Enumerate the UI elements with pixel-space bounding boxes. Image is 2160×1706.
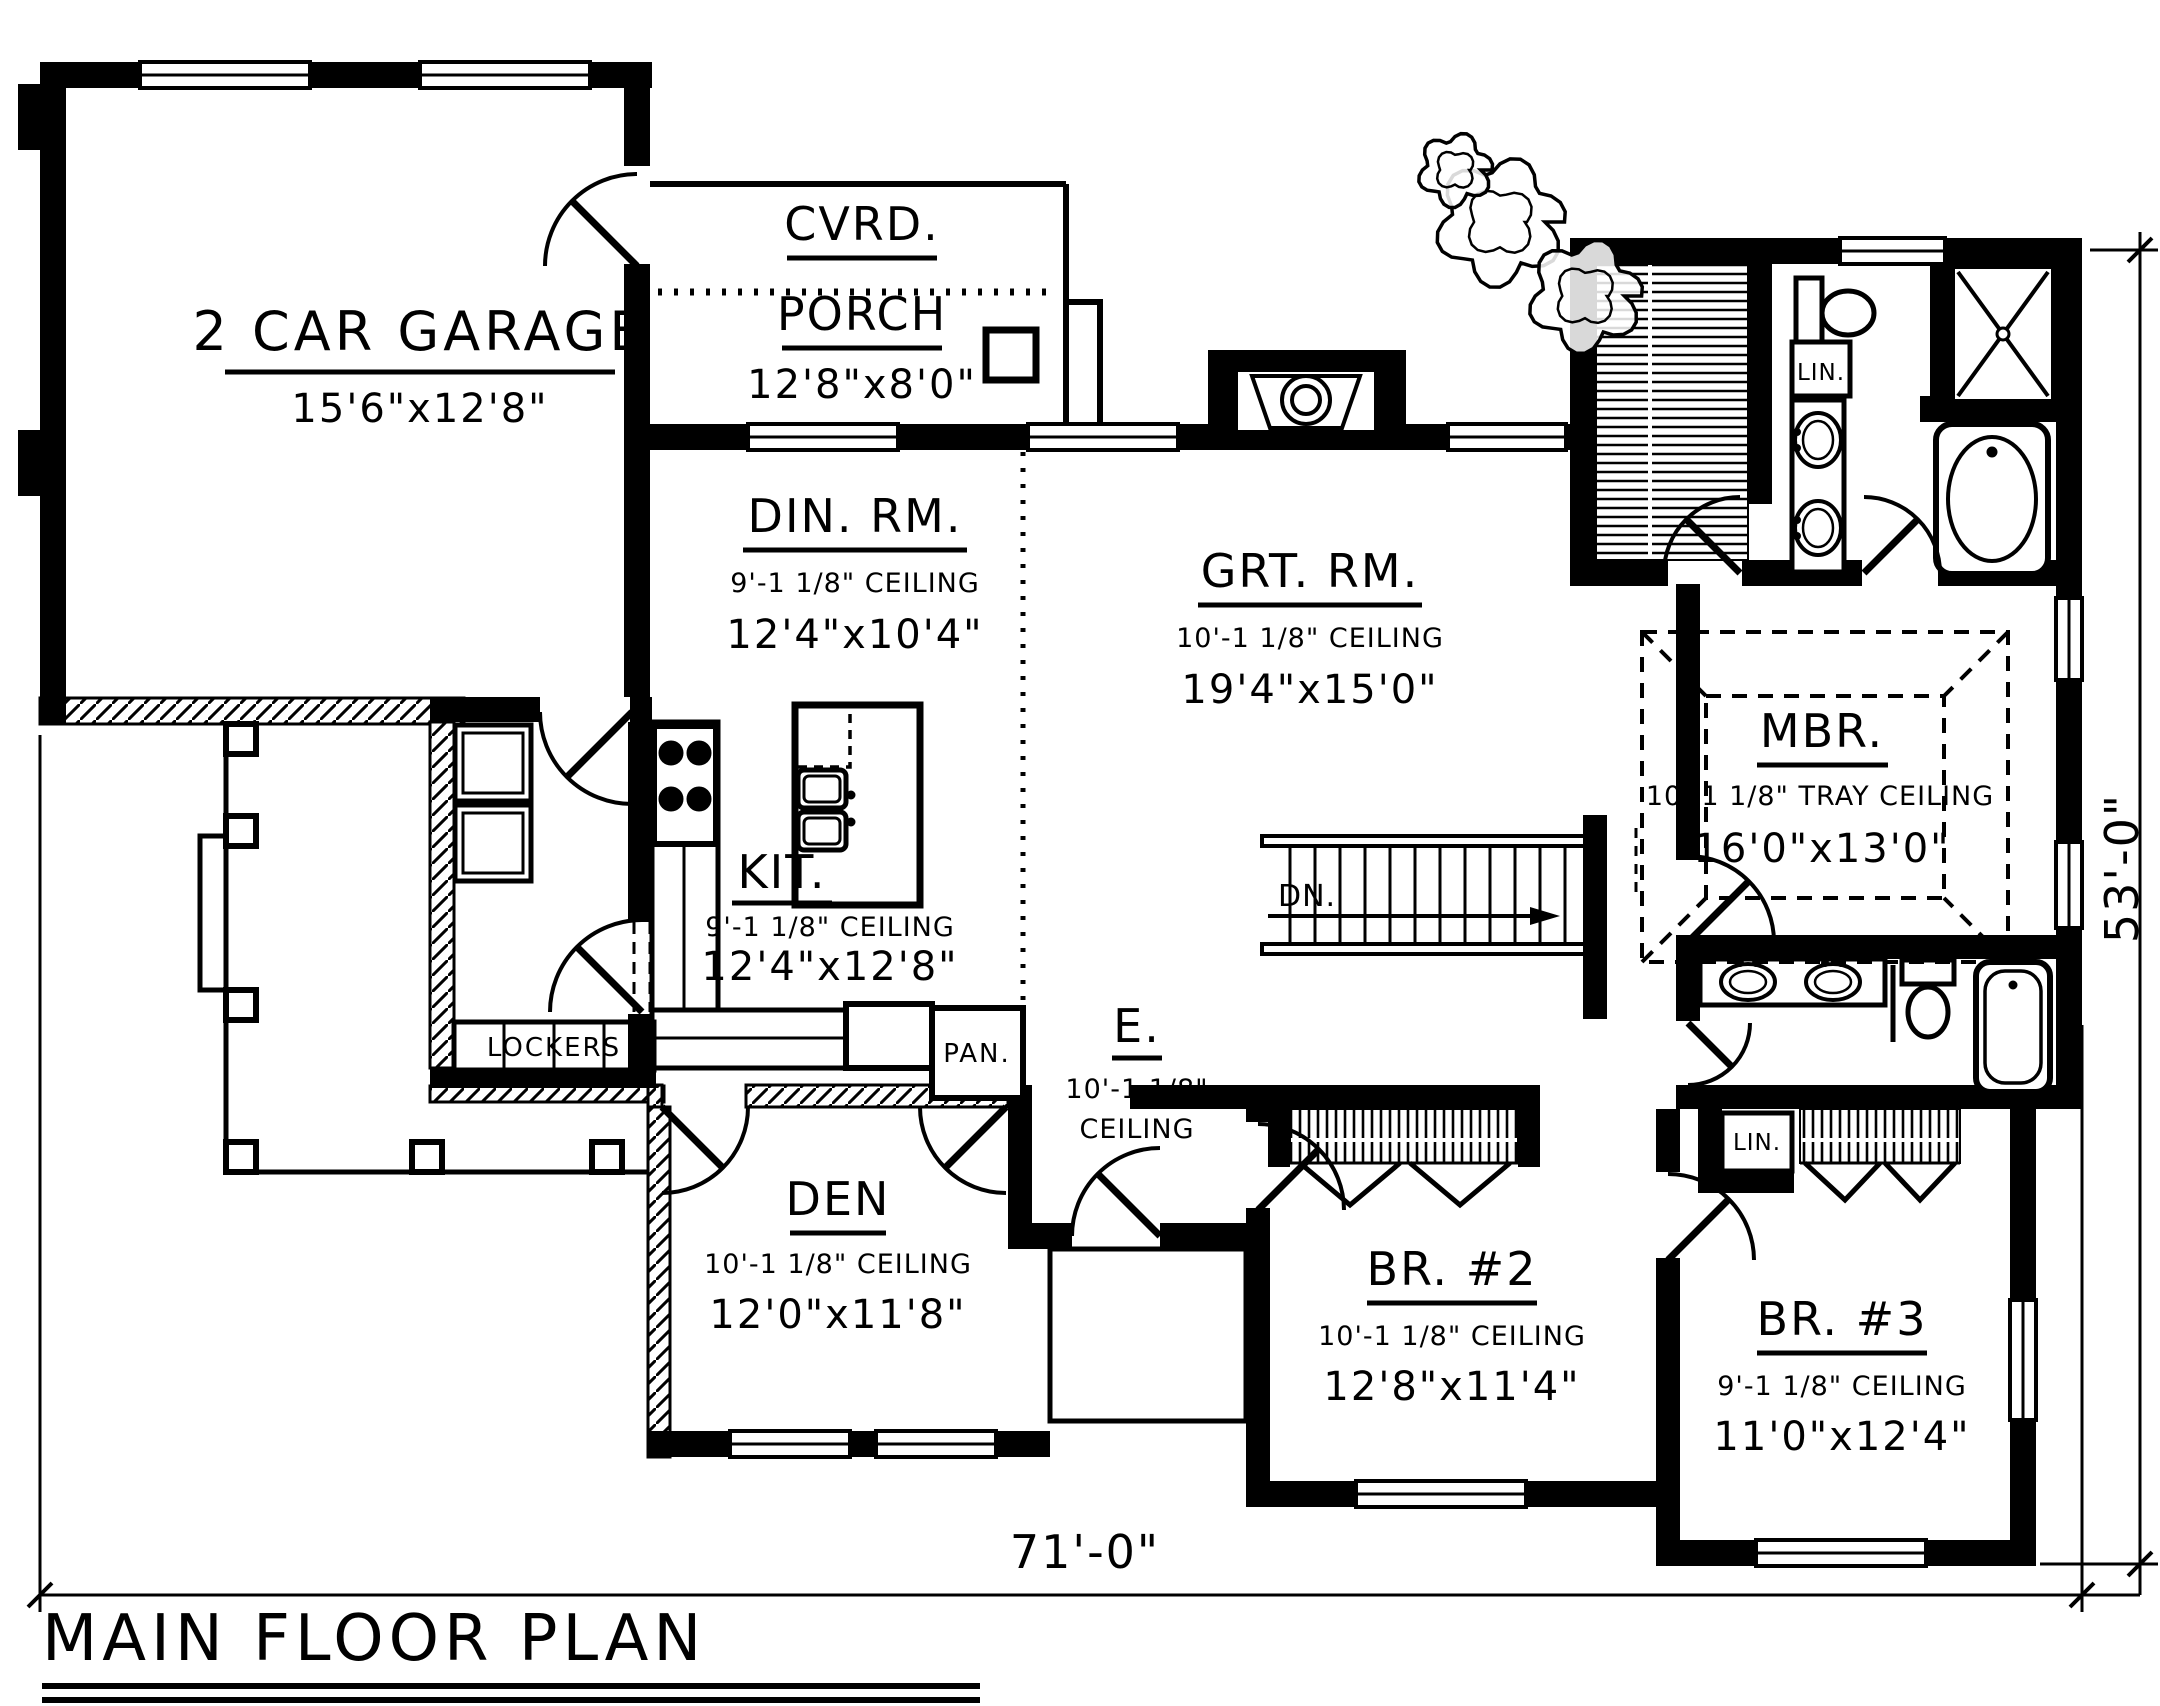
porch-label-line1: CVRD. — [784, 197, 940, 251]
window — [2010, 1300, 2036, 1420]
window — [2056, 842, 2082, 928]
kitchen-ceiling: 9'-1 1/8" CEILING — [705, 912, 955, 943]
window — [1756, 1540, 1926, 1566]
br3-ceiling: 9'-1 1/8" CEILING — [1717, 1371, 1967, 1402]
stairs-down-label: DN. — [1278, 879, 1336, 914]
porch-column — [226, 724, 256, 754]
porch-column — [226, 816, 256, 846]
arrow-head-icon — [1530, 907, 1560, 925]
dining-size: 12'4"x10'4" — [726, 612, 983, 658]
door-swing — [920, 1107, 1006, 1193]
br2-bifold-door — [1410, 1163, 1510, 1205]
window — [140, 62, 310, 88]
den-ceiling: 10'-1 1/8" CEILING — [704, 1249, 972, 1280]
toilet — [1796, 278, 1874, 348]
door-swing — [1688, 1023, 1750, 1085]
porch-column — [226, 1142, 256, 1172]
laundry-fixtures — [455, 725, 531, 881]
window — [876, 1431, 996, 1457]
floor-plan-drawing: 2 CAR GARAGE 15'6"x12'8" CVRD. PORCH 12'… — [0, 0, 2160, 1706]
br2-size: 12'8"x11'4" — [1323, 1364, 1580, 1410]
master-vanity — [1792, 400, 1844, 572]
refrigerator — [846, 1004, 932, 1068]
porch-column — [226, 990, 256, 1020]
door-swing — [540, 712, 632, 804]
closet-doors — [1290, 1163, 1960, 1205]
porch-columns — [226, 724, 622, 1172]
br3-closet-hatch — [1800, 1109, 1960, 1163]
tree-icon — [1419, 134, 1493, 208]
br3-bifold-door — [1805, 1163, 1880, 1200]
great-room-ceiling: 10'-1 1/8" CEILING — [1176, 623, 1444, 654]
hall-tub — [1976, 962, 2050, 1092]
pantry-label: PAN. — [943, 1039, 1011, 1069]
door-swing — [545, 174, 637, 266]
floor-plan-page: 2 CAR GARAGE 15'6"x12'8" CVRD. PORCH 12'… — [0, 0, 2160, 1706]
range-stove — [654, 726, 716, 844]
master-tub — [1936, 424, 2048, 574]
master-label: MBR. — [1760, 704, 1884, 758]
garage-label: 2 CAR GARAGE — [193, 300, 648, 363]
hall-toilet — [1902, 960, 1954, 1037]
dining-ceiling: 9'-1 1/8" CEILING — [730, 568, 980, 599]
door-swing — [550, 920, 642, 1012]
porch-label-line2: PORCH — [777, 287, 947, 341]
master-ceiling: 10'-1 1/8" TRAY CEILING — [1646, 781, 1994, 812]
lockers-label: LOCKERS — [487, 1033, 621, 1063]
kitchen-size: 12'4"x12'8" — [701, 944, 958, 990]
master-size: 16'0"x13'0" — [1693, 826, 1950, 872]
den-label: DEN — [786, 1172, 891, 1226]
porch-column — [412, 1142, 442, 1172]
dimension-labels: 71'-0" 53'-0" — [1010, 793, 2149, 1579]
window — [730, 1431, 850, 1457]
entry-stoop — [1050, 1249, 1246, 1421]
tree-icon — [1419, 134, 1642, 354]
window — [1028, 424, 1178, 450]
door-swing — [1864, 497, 1940, 573]
window — [1448, 424, 1566, 450]
kitchen-label: KIT. — [738, 845, 827, 899]
den-size: 12'0"x11'8" — [709, 1292, 966, 1338]
fireplace — [1238, 372, 1374, 430]
master-linen-label: LIN. — [1797, 360, 1845, 386]
br3-bifold-door — [1885, 1163, 1955, 1200]
br3-size: 11'0"x12'4" — [1713, 1414, 1970, 1460]
great-room-label: GRT. RM. — [1201, 544, 1419, 598]
window — [420, 62, 590, 88]
shower — [1952, 266, 2054, 402]
porch-post — [986, 330, 1036, 380]
entry-label: E. — [1113, 999, 1161, 1053]
br2-label: BR. #2 — [1367, 1242, 1538, 1296]
dining-label: DIN. RM. — [748, 489, 963, 543]
br3-label: BR. #3 — [1757, 1292, 1928, 1346]
br2-bifold-door — [1300, 1163, 1400, 1205]
window — [748, 424, 898, 450]
window — [2056, 598, 2082, 680]
hall-vanity — [1700, 959, 1885, 1005]
br2-ceiling: 10'-1 1/8" CEILING — [1318, 1321, 1586, 1352]
garage-size: 15'6"x12'8" — [291, 386, 548, 432]
door-swing — [1072, 1148, 1160, 1236]
entry-ceiling-line1: 10'-1 1/8" — [1065, 1074, 1208, 1105]
height-dimension: 53'-0" — [2095, 793, 2149, 943]
window — [1356, 1481, 1526, 1507]
plan-title: MAIN FLOOR PLAN — [42, 1602, 706, 1676]
entry-ceiling-line2: CEILING — [1080, 1114, 1195, 1145]
great-room-size: 19'4"x15'0" — [1181, 667, 1438, 713]
porch-column — [592, 1142, 622, 1172]
door-swing — [662, 1107, 748, 1193]
porch-size: 12'8"x8'0" — [747, 362, 977, 408]
hall-linen-label: LIN. — [1733, 1130, 1781, 1156]
window — [1840, 238, 1945, 264]
width-dimension: 71'-0" — [1010, 1525, 1160, 1579]
